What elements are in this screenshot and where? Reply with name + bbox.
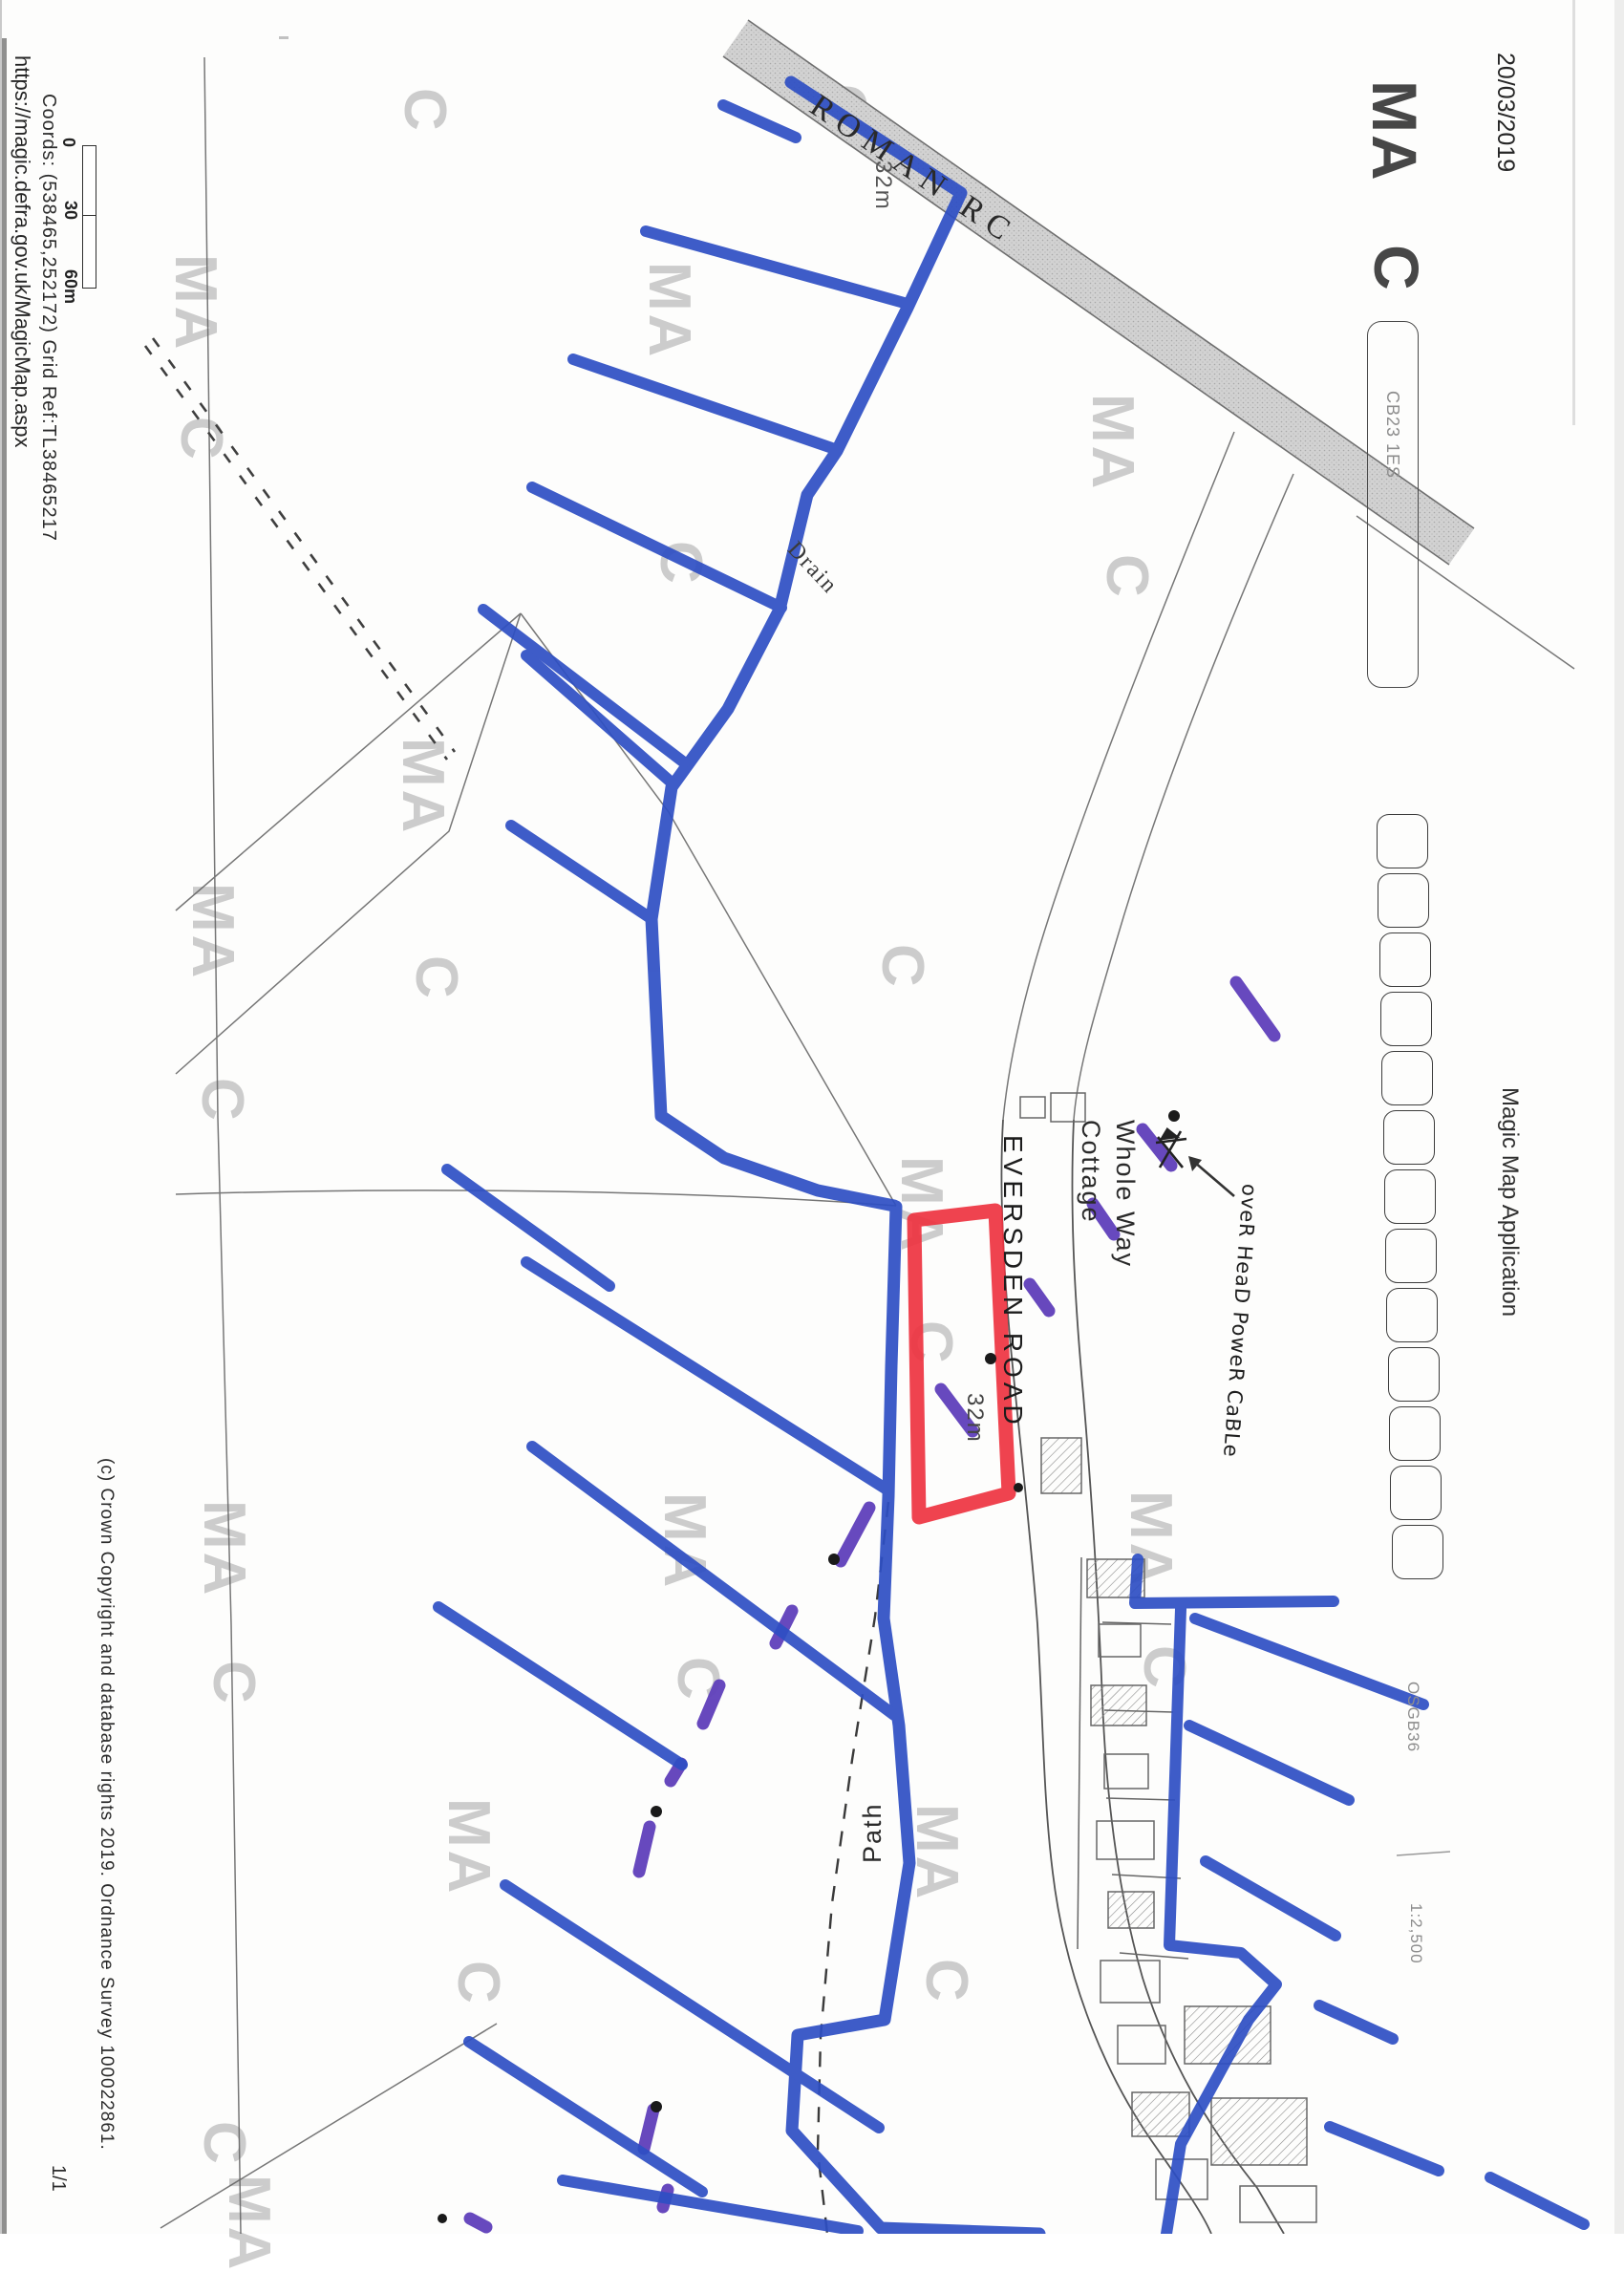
path-label: Path [858, 1802, 887, 1863]
scale-tick-0: 0 [58, 138, 78, 147]
postcode-search-box: CB23 1ES [1367, 321, 1419, 688]
scale-tick-30: 30 [60, 201, 80, 220]
toolbar-button [1386, 1288, 1438, 1342]
map-scale-label: 1:2,500 [1406, 1903, 1425, 1964]
scale-bar [82, 145, 96, 289]
toolbar-button [1389, 1406, 1441, 1461]
toolbar-button [1384, 1169, 1436, 1224]
source-url: https://magic.defra.gov.uk/MagicMap.aspx [10, 55, 34, 447]
datum-label: OSGB36 [1403, 1682, 1422, 1752]
postcode-search-value: CB23 1ES [1382, 391, 1402, 479]
scanned-map-page: CMACMACCMACMACMACCMACMACMACMACMACMACCMA [0, 0, 1624, 2234]
toolbar-button [1378, 873, 1429, 928]
track-double-dashed [145, 338, 455, 760]
field-distance-label: 32m [869, 161, 896, 211]
copyright-line: (c) Crown Copyright and database rights … [96, 1458, 117, 2151]
cottage-label-line1: Whole Way [1108, 1120, 1143, 1268]
coords-readout: Coords: (538465,252172) Grid Ref:TL38465… [37, 94, 59, 542]
toolbar-button [1381, 1051, 1433, 1105]
scale-tick-60: 60m [60, 269, 80, 304]
toolbar-button [1390, 1466, 1442, 1520]
building-outlines [1020, 1093, 1316, 2222]
app-title: Magic Map Application [1496, 1087, 1523, 1317]
cottage-label-line2: Cottage [1073, 1120, 1107, 1268]
scale-divider-tick [1397, 1852, 1450, 1855]
toolbar-button [1392, 1525, 1443, 1579]
toolbar-button [1380, 992, 1432, 1046]
page-number: 1/1 [47, 2165, 69, 2192]
magic-logo-part1: MA [1358, 80, 1431, 182]
highlight-distance-label: 32m [961, 1393, 988, 1444]
eversden-road-label: EVERSDEN ROAD [997, 1135, 1028, 1429]
scale-bar-mid-tick [83, 215, 96, 216]
toolbar-button [1379, 932, 1431, 987]
cottage-label: Whole Way Cottage [1073, 1120, 1143, 1268]
print-date: 20/03/2019 [1491, 53, 1519, 172]
toolbar-button [1383, 1110, 1435, 1165]
annotation-arrow [1188, 1156, 1234, 1196]
magic-logo-part2: C [1360, 245, 1433, 290]
highlighted-plot-rectangle [914, 1211, 1009, 1517]
toolbar-button [1377, 814, 1428, 868]
toolbar-button [1388, 1347, 1440, 1402]
toolbar-button [1385, 1229, 1437, 1283]
